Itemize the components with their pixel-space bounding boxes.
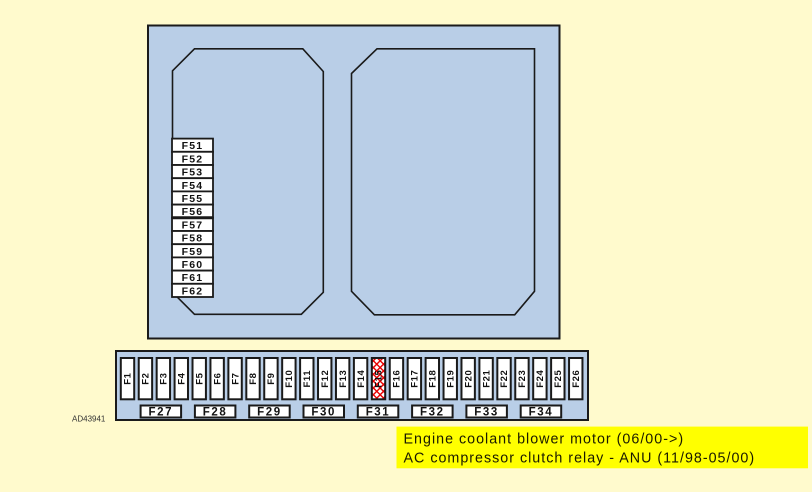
svg-text:F22: F22 <box>499 370 510 388</box>
svg-text:F19: F19 <box>445 370 456 388</box>
svg-text:F6: F6 <box>212 373 223 385</box>
svg-text:F10: F10 <box>284 370 295 388</box>
svg-text:F1: F1 <box>123 372 134 384</box>
svg-text:F62: F62 <box>182 285 204 297</box>
svg-text:F20: F20 <box>463 370 474 388</box>
svg-text:F54: F54 <box>182 180 204 192</box>
svg-text:AD43941: AD43941 <box>72 415 106 424</box>
svg-text:F26: F26 <box>571 370 582 388</box>
svg-text:F11: F11 <box>302 370 313 388</box>
svg-text:F55: F55 <box>182 193 204 205</box>
svg-text:F58: F58 <box>182 233 204 245</box>
svg-text:F51: F51 <box>182 140 204 152</box>
svg-text:AC compressor clutch relay - A: AC compressor clutch relay - ANU (11/98-… <box>404 451 756 467</box>
svg-text:F13: F13 <box>338 370 349 388</box>
svg-text:F34: F34 <box>529 407 554 419</box>
svg-text:F60: F60 <box>182 259 204 271</box>
svg-text:F27: F27 <box>148 407 173 419</box>
svg-text:F57: F57 <box>182 219 204 231</box>
svg-text:F16: F16 <box>392 370 403 388</box>
svg-text:F30: F30 <box>311 407 336 419</box>
svg-text:F32: F32 <box>420 407 445 419</box>
svg-text:F9: F9 <box>266 373 277 385</box>
svg-text:F5: F5 <box>194 372 205 384</box>
svg-text:F52: F52 <box>182 153 204 165</box>
svg-text:F2: F2 <box>141 373 152 385</box>
svg-text:F18: F18 <box>428 370 439 388</box>
svg-text:F29: F29 <box>257 407 282 419</box>
svg-text:Engine coolant blower motor (0: Engine coolant blower motor (06/00->) <box>404 431 685 447</box>
svg-text:F14: F14 <box>356 369 367 387</box>
svg-text:F15: F15 <box>374 369 385 387</box>
svg-text:F8: F8 <box>248 373 259 385</box>
svg-text:F61: F61 <box>182 272 204 284</box>
svg-text:F7: F7 <box>230 373 241 385</box>
svg-text:F33: F33 <box>474 407 499 419</box>
svg-text:F59: F59 <box>182 246 204 258</box>
svg-text:F23: F23 <box>517 370 528 388</box>
svg-text:F17: F17 <box>410 370 421 388</box>
svg-text:F53: F53 <box>182 167 204 179</box>
svg-text:F28: F28 <box>203 407 228 419</box>
svg-text:F4: F4 <box>176 372 187 384</box>
svg-text:F25: F25 <box>553 369 564 387</box>
svg-text:F31: F31 <box>366 407 391 419</box>
svg-text:F12: F12 <box>320 370 331 388</box>
svg-text:F24: F24 <box>535 369 546 387</box>
svg-text:F3: F3 <box>159 373 170 385</box>
svg-text:F21: F21 <box>481 369 492 387</box>
